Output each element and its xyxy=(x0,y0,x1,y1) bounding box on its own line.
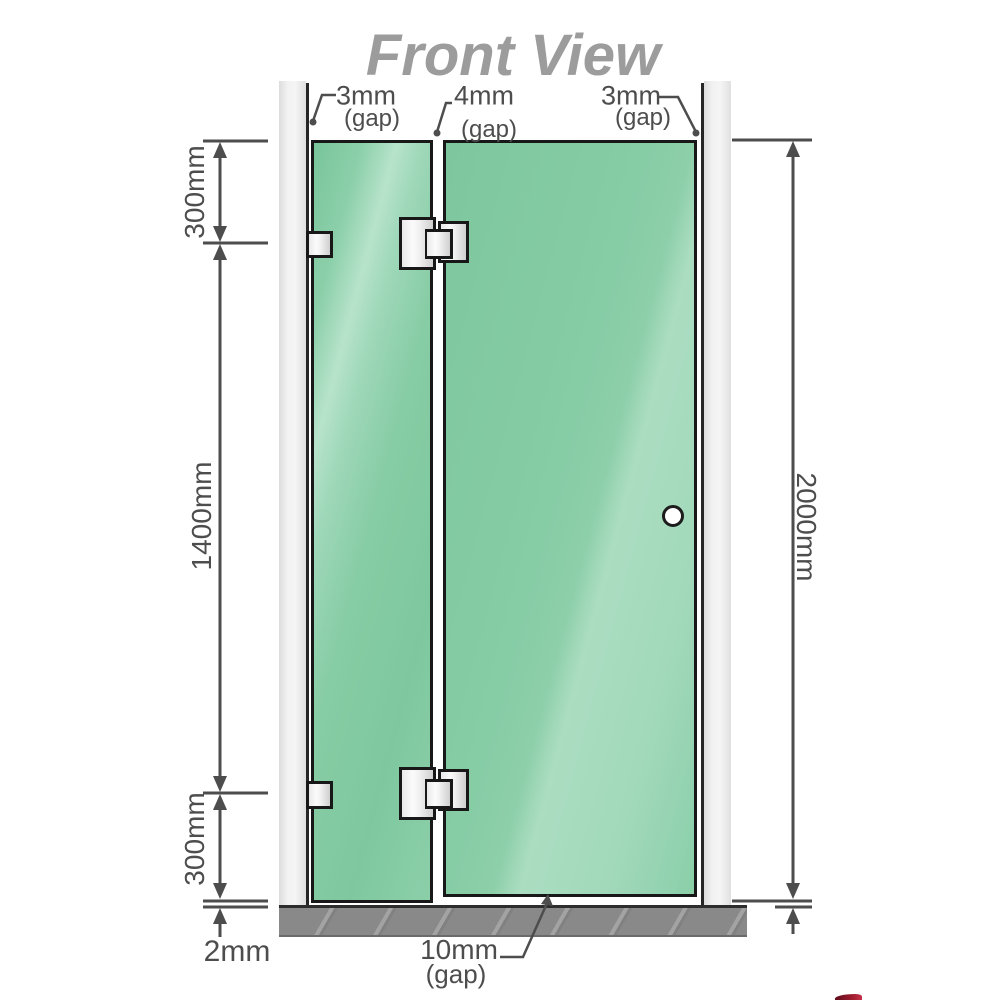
gap-label-top-middle-value: 4mm xyxy=(454,83,514,110)
logo-fragment xyxy=(835,994,862,1000)
left-dimension-300-top xyxy=(213,142,227,242)
left-dimension-2mm xyxy=(213,908,227,937)
left-dimension-300-bottom xyxy=(213,794,227,899)
dimension-label-300-bottom: 300mm xyxy=(181,792,209,885)
leader-3mm-left xyxy=(310,95,337,126)
leader-10mm-bottom xyxy=(500,894,553,957)
dimension-label-300-top: 300mm xyxy=(181,145,209,238)
gap-label-top-right-unit: (gap) xyxy=(615,106,671,130)
dimension-label-1400: 1400mm xyxy=(188,462,216,571)
dimension-label-2mm: 2mm xyxy=(204,937,271,967)
dimension-overlay xyxy=(0,0,1000,1000)
right-dimension-floor-gap xyxy=(786,908,800,934)
leader-4mm-middle xyxy=(434,103,453,137)
front-view-diagram: Front View xyxy=(0,0,1000,1000)
dimension-label-2000: 2000mm xyxy=(792,473,820,582)
gap-label-top-left-unit: (gap) xyxy=(344,107,400,131)
gap-label-top-middle-unit: (gap) xyxy=(461,118,517,142)
gap-label-bottom-unit: (gap) xyxy=(426,961,487,987)
